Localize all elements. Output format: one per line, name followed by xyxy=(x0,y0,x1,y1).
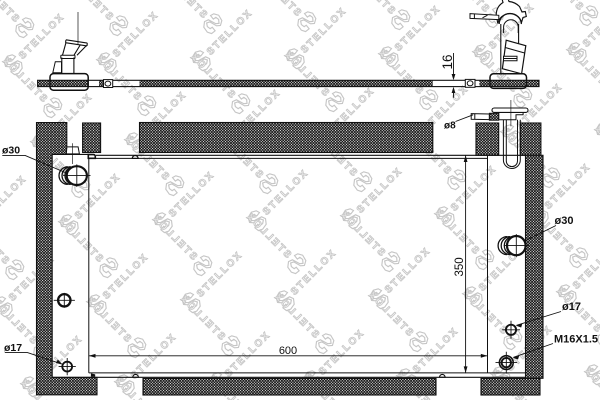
svg-text:ø8: ø8 xyxy=(444,120,456,131)
svg-text:350: 350 xyxy=(454,257,466,276)
svg-text:M16X1.5: M16X1.5 xyxy=(554,333,598,345)
svg-text:ø30: ø30 xyxy=(555,215,574,227)
svg-text:ø17: ø17 xyxy=(4,342,22,354)
svg-text:ø17: ø17 xyxy=(562,301,581,313)
svg-text:ø30: ø30 xyxy=(2,144,20,156)
svg-text:600: 600 xyxy=(279,345,297,357)
svg-text:16: 16 xyxy=(440,54,455,69)
